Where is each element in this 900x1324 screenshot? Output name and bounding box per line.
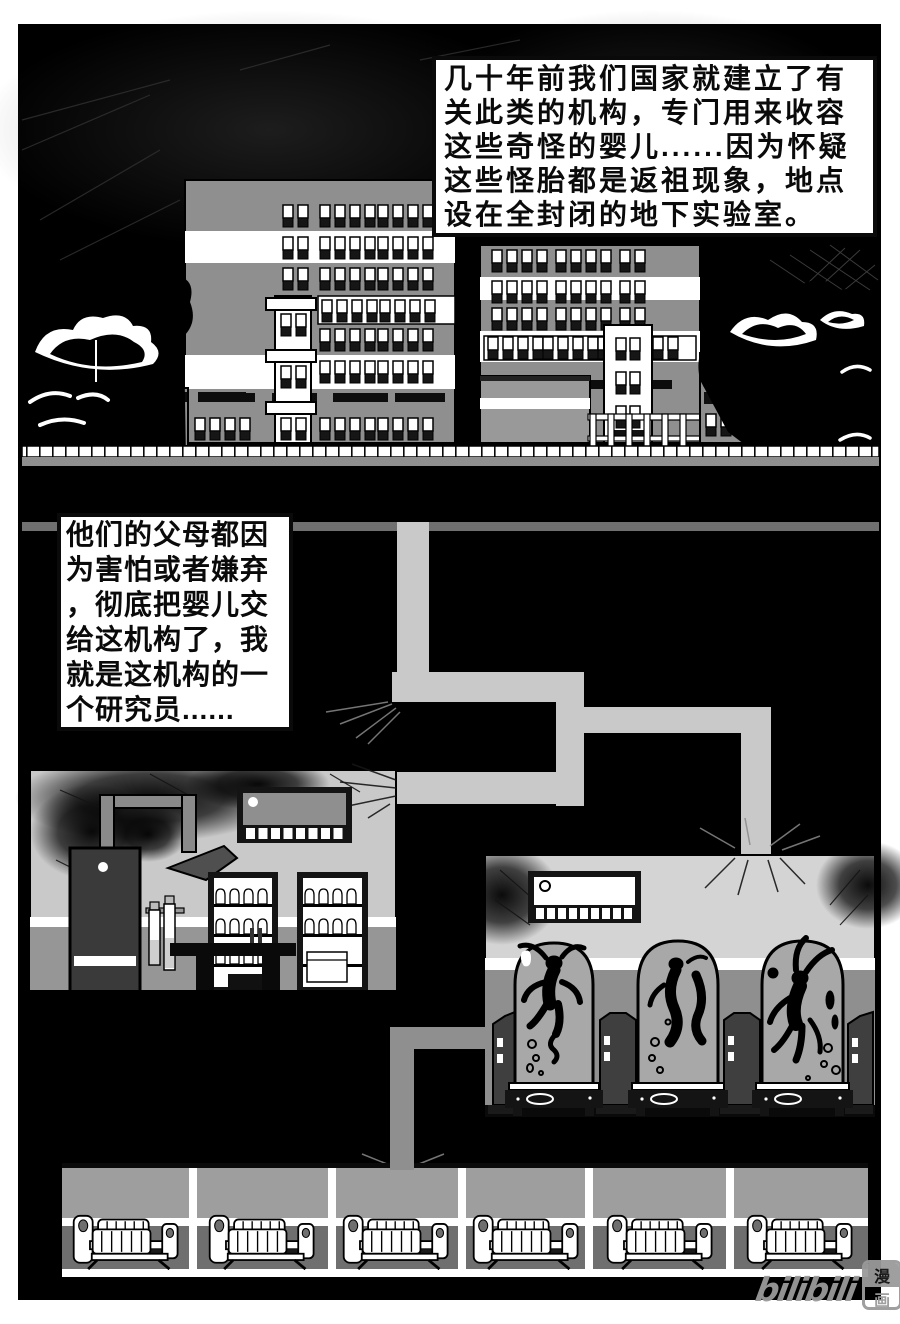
watermark-manga-badge: 漫 画: [862, 1260, 900, 1310]
specimen-tank-3: [752, 938, 853, 1116]
specimen-tank-1: [505, 943, 603, 1116]
watermark-bilibili-manga: bilibili 漫 画: [756, 1260, 900, 1310]
manga-page: 几十年前我们国家就建立了有 关此类的机构，专门用来收容 这些奇怪的婴儿.....…: [0, 0, 900, 1324]
narration-line: 个研究员......: [66, 692, 284, 727]
narration-box-2: 他们的父母都因 为害怕或者嫌弃 ，彻底把婴儿交 给这机构了，我 就是这机构的一 …: [57, 513, 293, 731]
dormitory-hall: [62, 1163, 868, 1277]
narration-line: 关此类的机构，专门用来收容: [444, 96, 865, 130]
street-road: [22, 457, 879, 466]
watermark-brand-logo: bilibili: [752, 1270, 858, 1310]
narration-line: 这些怪胎都是返祖现象，地点: [444, 164, 865, 198]
street-wall: [22, 446, 879, 457]
building-right: [480, 245, 700, 456]
tank-room: [444, 841, 900, 1117]
narration-line: ，彻底把婴儿交: [66, 587, 284, 622]
specimen-tank-2: [628, 941, 728, 1116]
reagent-shelf-2: [297, 872, 368, 993]
narration-line: 几十年前我们国家就建立了有: [444, 62, 865, 96]
wall-monitor-right: [528, 871, 641, 923]
watermark-char-man: 漫: [865, 1263, 899, 1287]
narration-line: 他们的父母都因: [66, 517, 284, 552]
narration-line: 给这机构了，我: [66, 622, 284, 657]
narration-line: 为害怕或者嫌弃: [66, 552, 284, 587]
lab-room-left: [15, 754, 396, 993]
narration-line: 这些奇怪的婴儿......因为怀疑: [444, 130, 865, 164]
narration-line: 设在全封闭的地下实验室。: [444, 198, 865, 232]
wall-monitor-left: [237, 787, 352, 843]
building-left: [185, 180, 455, 443]
narration-line: 就是这机构的一: [66, 657, 284, 692]
narration-box-1: 几十年前我们国家就建立了有 关此类的机构，专门用来收容 这些奇怪的婴儿.....…: [432, 56, 877, 237]
specimen-cabinet: [70, 848, 140, 993]
watermark-char-hua: 画: [865, 1287, 899, 1310]
